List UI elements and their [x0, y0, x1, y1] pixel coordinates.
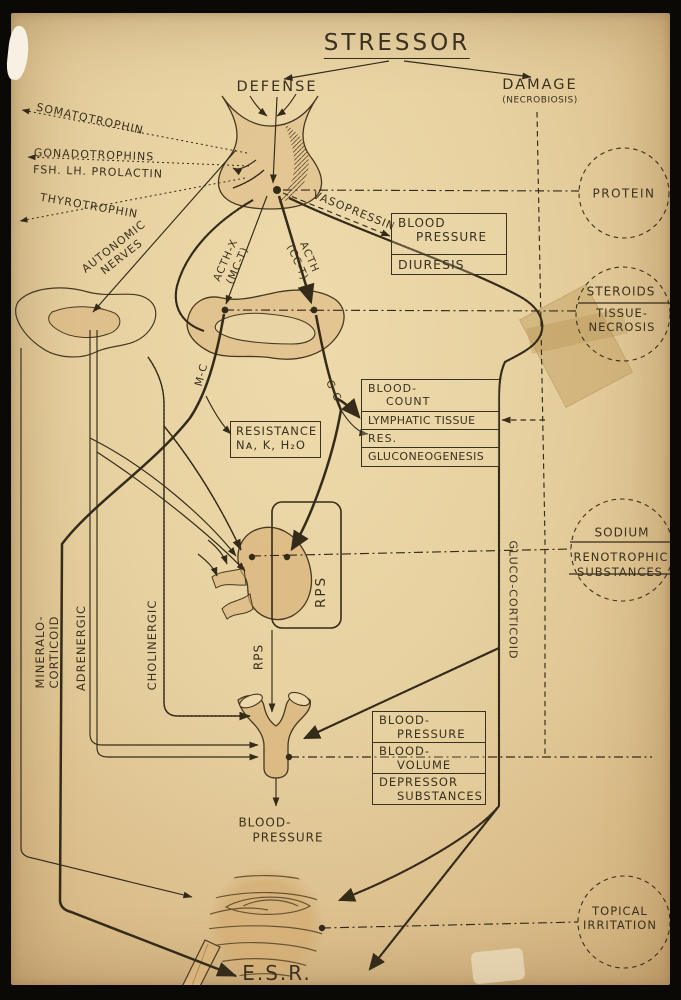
- hatched-pathways: [148, 170, 542, 969]
- resistance-box: RESISTANCE Nᴀ, K, H₂O: [230, 421, 321, 458]
- blood-pressure-diuresis-box: BLOOD PRESSURE DIURESIS: [391, 213, 507, 275]
- kidney: [212, 502, 341, 628]
- esr-label: E.S.R.: [242, 961, 312, 985]
- necrobiosis-label: (NECROBIOSIS): [502, 96, 578, 107]
- rps-kidney-label: RPS: [313, 576, 329, 608]
- adrenal-gland: [187, 290, 344, 359]
- blood-pressure-volume-box: BLOOD- PRESSURE BLOOD- VOLUME DEPRESSOR …: [372, 711, 486, 805]
- adrenergic-label: ADRENERGIC: [74, 605, 88, 691]
- blood-pressure-bottom-label: BLOOD- PRESSURE: [238, 815, 323, 844]
- cholinergic-label: CHOLINERGIC: [145, 600, 159, 691]
- diagram-title: STRESSOR: [324, 29, 470, 59]
- renotrophic-label: RENOTROPHIC: [574, 550, 669, 564]
- steroids-label: STEROIDS: [587, 285, 656, 300]
- defense-label: DEFENSE: [236, 79, 317, 97]
- topical-irritation-label: TOPICAL IRRITATION: [583, 904, 657, 932]
- damage-label: DAMAGE: [502, 77, 577, 95]
- autonomic-center-organ: [16, 288, 156, 357]
- gluco-corticoid-label: GLUCO-CORTICOID: [506, 541, 519, 660]
- sodium-label: SODIUM: [595, 526, 650, 541]
- blood-vessel: [238, 690, 311, 778]
- protein-label: PROTEIN: [593, 187, 656, 202]
- tissue-necrosis-label: TISSUE- NECROSIS: [589, 306, 656, 334]
- framed-diagram-photo: { "colors": {"paper":"#e7d1a1","ink":"#3…: [0, 0, 681, 1000]
- blood-count-box: BLOOD- COUNT LYMPHATIC TISSUE RES. GLUCO…: [361, 379, 500, 467]
- substances-label: SUBSTANCES: [577, 565, 663, 579]
- rps-artery-label: RPS: [252, 644, 267, 670]
- mineralo-corticoid-label: MINERALO- CORTICOID: [33, 615, 61, 688]
